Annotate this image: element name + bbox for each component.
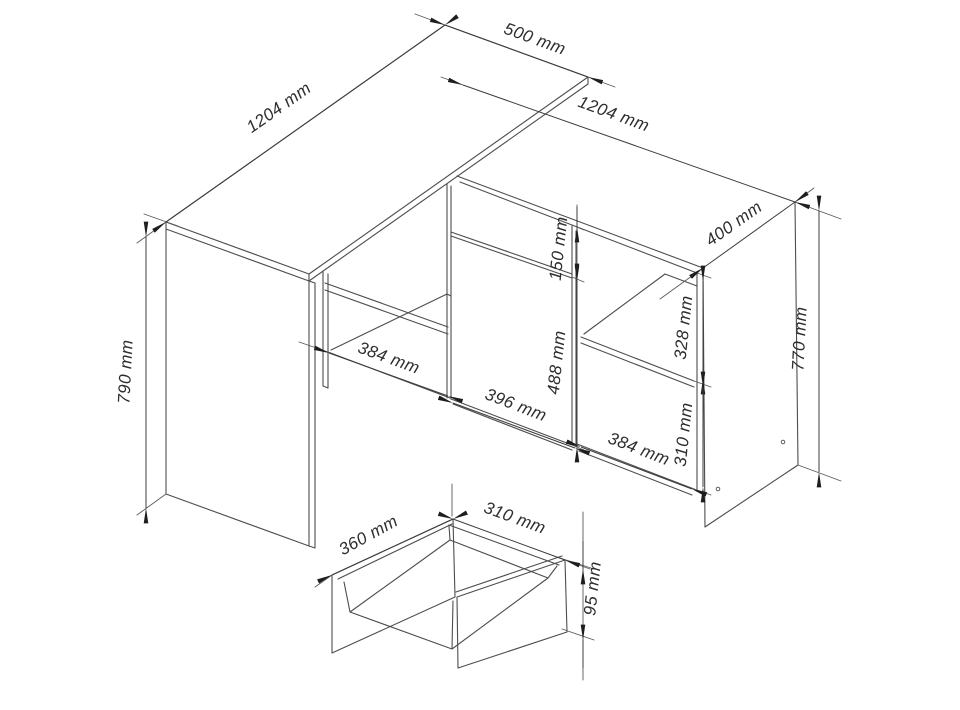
- label-door-height: 488 mm: [544, 329, 570, 395]
- label-drawer-depth: 360 mm: [336, 511, 402, 559]
- label-desk-length: 1204 mm: [243, 78, 315, 136]
- label-upper-shelf-opening: 328 mm: [671, 294, 697, 360]
- label-cabinet-height: 770 mm: [788, 306, 810, 371]
- label-drawer-width: 310 mm: [481, 498, 548, 538]
- label-drawer-side-height: 95 mm: [580, 560, 605, 616]
- extension-lines: [137, 14, 841, 680]
- cam-hole: [781, 440, 785, 444]
- label-drawer-front-height: 150 mm: [546, 215, 572, 281]
- desk-side-panel: [166, 229, 315, 548]
- corner-desk-dimension-diagram: 1204 mm 500 mm 1204 mm 400 mm 790 mm 770…: [0, 0, 960, 710]
- desk-top: [166, 25, 588, 281]
- label-desk-depth: 500 mm: [501, 19, 568, 59]
- label-desk-height: 790 mm: [114, 339, 136, 404]
- dimension-labels: 1204 mm 500 mm 1204 mm 400 mm 790 mm 770…: [114, 19, 810, 617]
- label-lower-shelf-opening: 310 mm: [671, 401, 697, 467]
- cam-hole: [716, 487, 720, 491]
- dim-cabinet-length: [463, 85, 795, 202]
- label-cabinet-depth: 400 mm: [702, 197, 766, 250]
- dim-desk-length: [166, 25, 445, 222]
- label-right-opening: 384 mm: [605, 428, 672, 469]
- label-left-opening: 384 mm: [355, 338, 422, 378]
- technical-drawing-page: 1204 mm 500 mm 1204 mm 400 mm 790 mm 770…: [0, 0, 960, 710]
